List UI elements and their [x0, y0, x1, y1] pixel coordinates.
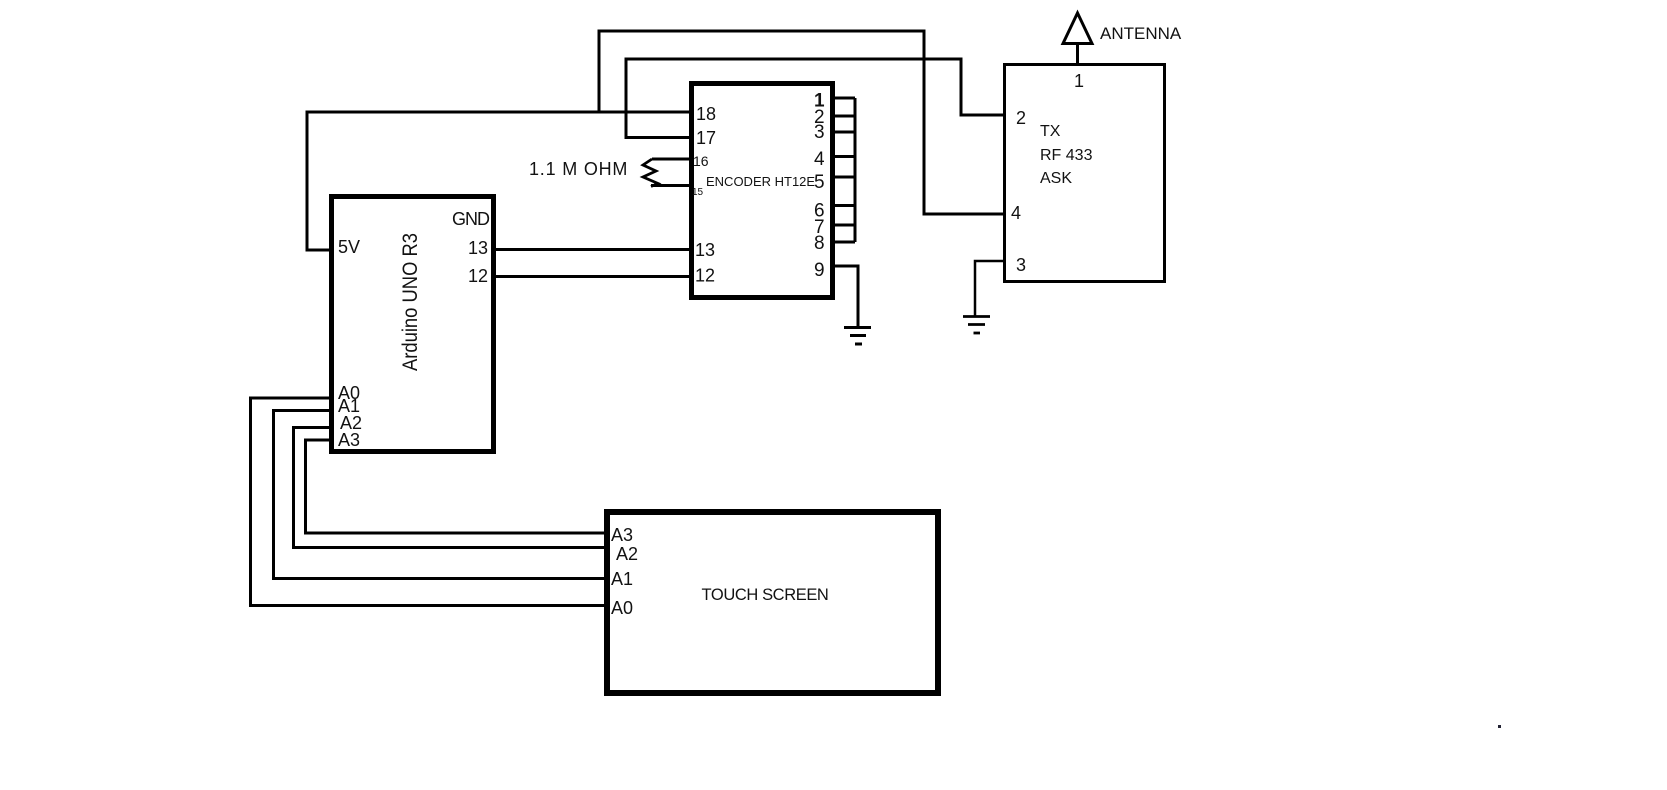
svg-text:16: 16 — [693, 153, 709, 169]
svg-text:4: 4 — [1011, 203, 1021, 223]
svg-text:9: 9 — [814, 260, 825, 281]
svg-text:ASK: ASK — [1040, 170, 1072, 187]
svg-text:13: 13 — [695, 240, 715, 260]
svg-text:17: 17 — [696, 128, 716, 148]
svg-text:A2: A2 — [616, 544, 638, 564]
svg-text:ENCODER HT12E: ENCODER HT12E — [706, 174, 815, 189]
svg-text:13: 13 — [468, 238, 488, 258]
svg-text:A3: A3 — [611, 525, 633, 545]
svg-text:ANTENNA: ANTENNA — [1100, 24, 1182, 43]
svg-text:8: 8 — [814, 233, 825, 254]
svg-text:A1: A1 — [611, 569, 633, 589]
svg-text:12: 12 — [695, 266, 715, 286]
svg-text:Arduino UNO R3: Arduino UNO R3 — [399, 233, 422, 371]
svg-text:12: 12 — [468, 266, 488, 286]
svg-text:A3: A3 — [338, 430, 360, 450]
svg-text:5V: 5V — [338, 237, 360, 257]
svg-text:18: 18 — [696, 104, 716, 124]
svg-text:2: 2 — [1016, 108, 1026, 128]
svg-text:RF 433: RF 433 — [1040, 147, 1093, 164]
svg-text:4: 4 — [814, 149, 825, 170]
svg-text:1: 1 — [1074, 71, 1084, 91]
svg-text:TOUCH SCREEN: TOUCH SCREEN — [702, 586, 829, 604]
svg-text:3: 3 — [814, 122, 825, 143]
svg-text:1.1 M OHM: 1.1 M OHM — [529, 159, 628, 179]
svg-text:TX: TX — [1040, 123, 1061, 140]
svg-text:15: 15 — [692, 187, 704, 198]
svg-text:A0: A0 — [611, 598, 633, 618]
svg-text:3: 3 — [1016, 255, 1026, 275]
svg-text:GND: GND — [452, 209, 490, 229]
svg-text:5: 5 — [814, 172, 825, 193]
